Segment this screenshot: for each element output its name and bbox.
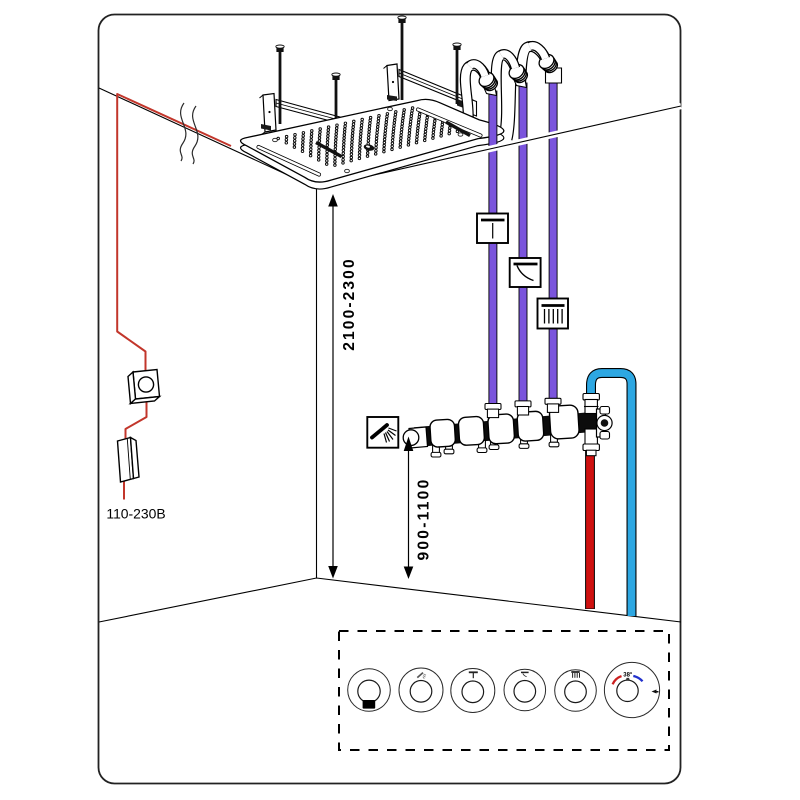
svg-text:2100-2300: 2100-2300 bbox=[341, 257, 358, 350]
svg-text:110-230B: 110-230B bbox=[106, 506, 165, 522]
svg-text:38°: 38° bbox=[623, 672, 633, 678]
svg-text:900-1100: 900-1100 bbox=[416, 477, 433, 560]
